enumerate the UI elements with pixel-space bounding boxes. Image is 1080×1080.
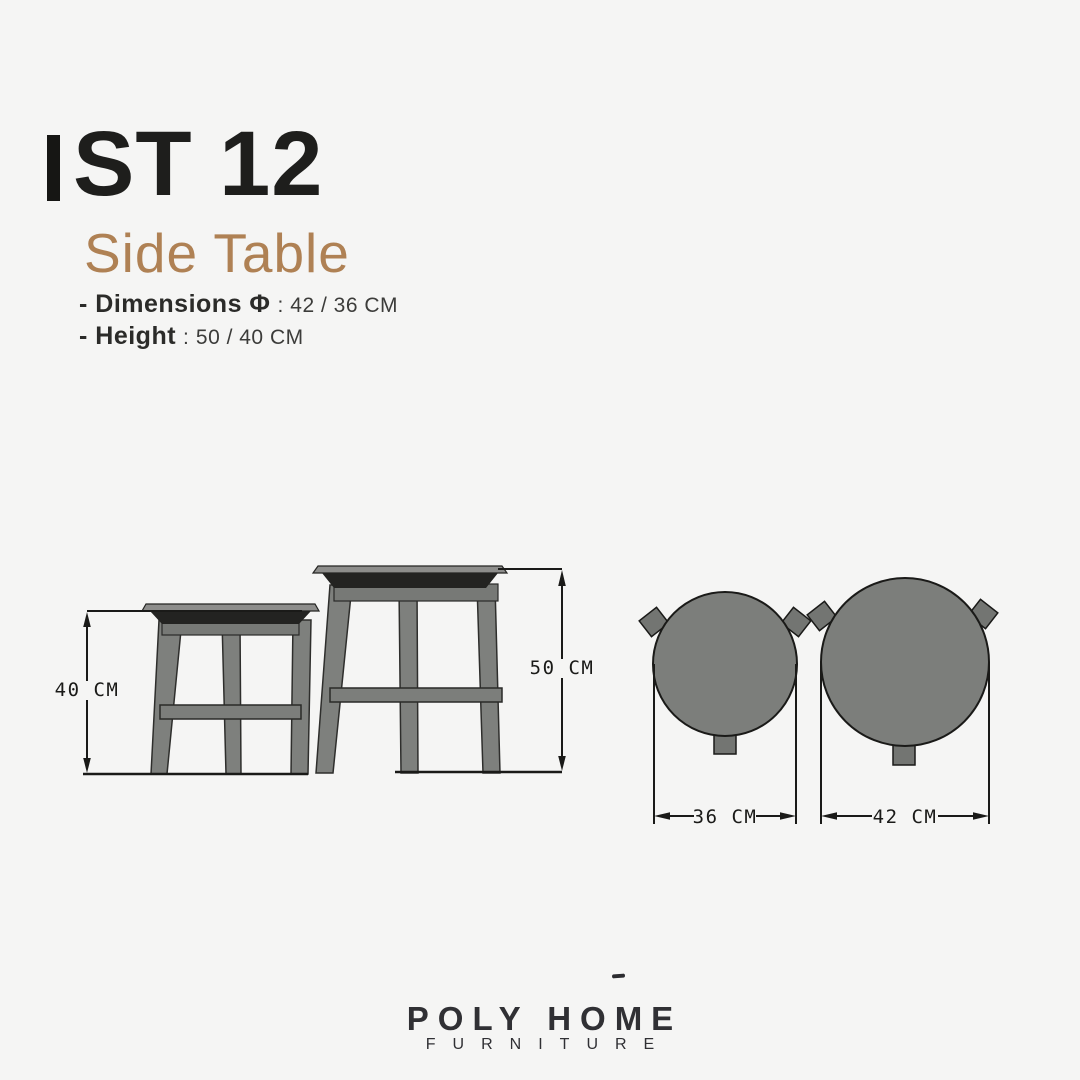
large-table-leg [399,585,418,773]
large-table-leg [316,585,352,773]
top-view: 36 CM 42 CM [639,578,998,828]
arrow-down-icon [558,756,566,771]
arrow-right-icon [780,812,796,819]
arrow-left-icon [654,812,670,819]
arrow-down-icon [83,758,91,773]
large-table-top [807,578,998,765]
small-tabletop-circle [653,592,797,736]
spec-dimensions: - Dimensions Φ : 42 / 36 CM [79,289,398,321]
diameter-label-small: 36 CM [693,806,758,828]
small-table-stretcher [160,705,301,719]
small-table-top-surface [142,604,319,611]
small-table-leg [151,620,182,774]
small-table-top [639,592,811,754]
brand-name: POLY HOME [0,1002,1080,1035]
diameter-label-large: 42 CM [873,806,938,828]
spec-height-separator: : [183,322,189,353]
spec-dimensions-label: - Dimensions Φ [79,289,270,320]
technical-drawing: 40 CM 50 CM [0,540,1080,870]
spec-dimensions-separator: : [277,290,283,321]
spec-height-label: - Height [79,321,176,352]
large-tabletop-circle [821,578,989,746]
large-table-top-surface [313,566,507,573]
small-table-leg [222,620,241,774]
spec-dimensions-value: 42 / 36 CM [290,290,398,321]
arrow-left-icon [821,812,837,819]
product-sheet: ST 12 Side Table - Dimensions Φ : 42 / 3… [0,0,1080,1080]
large-table-leg [477,585,500,773]
spec-list: - Dimensions Φ : 42 / 36 CM - Height : 5… [79,289,398,353]
spec-height: - Height : 50 / 40 CM [79,321,398,353]
large-table-front [313,566,507,773]
small-table-front [142,604,319,774]
large-table-stretcher [330,688,502,702]
title-accent-bar [47,135,60,201]
large-table-top-shadow [322,573,498,588]
title-row: ST 12 [47,118,323,210]
arrow-up-icon [558,570,566,586]
height-label-small: 40 CM [55,679,120,701]
spec-height-value: 50 / 40 CM [196,322,304,353]
arrow-right-icon [973,812,989,819]
small-table-top-shadow [150,611,311,624]
product-name: Side Table [84,226,350,281]
table-foot [893,745,915,765]
logo-accent-dash [612,974,625,978]
product-code: ST 12 [73,118,323,210]
brand-subtitle: FURNITURE [0,1037,1080,1053]
arrow-up-icon [83,612,91,627]
small-table-leg [291,620,311,774]
height-label-large: 50 CM [530,657,595,679]
front-view: 40 CM 50 CM [55,566,595,774]
